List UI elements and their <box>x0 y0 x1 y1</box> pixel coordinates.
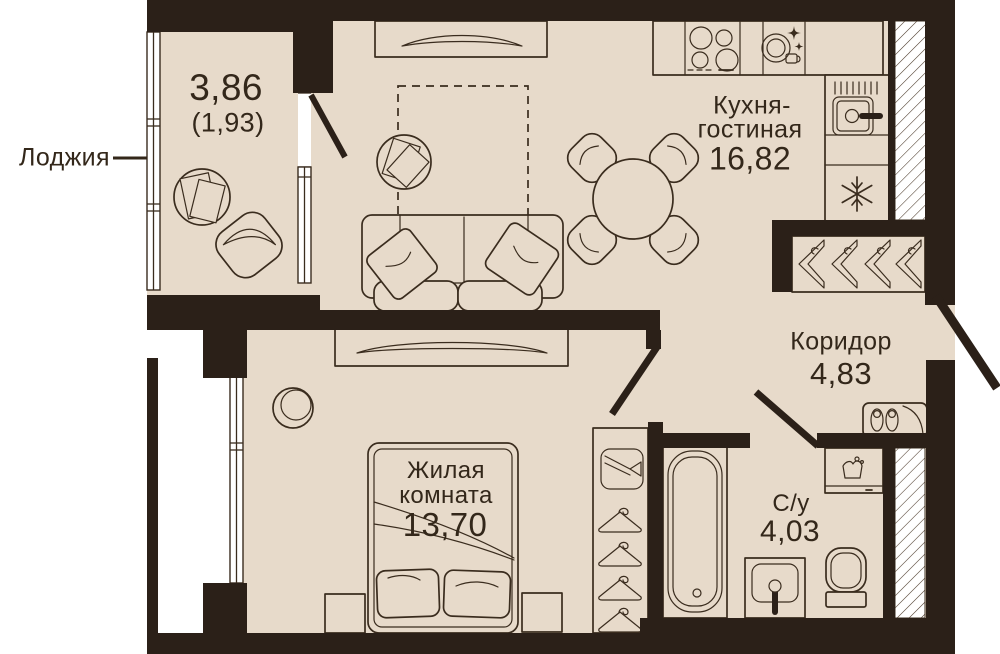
corridor-label: Коридор <box>790 328 892 357</box>
tv-console-icon <box>375 21 547 57</box>
bathtub-icon <box>663 445 727 618</box>
corridor-area-value: 4,83 <box>810 356 872 392</box>
nightstand-right <box>522 593 562 632</box>
bedroom-tv-console-icon <box>335 328 568 366</box>
mirror-icon <box>273 388 313 428</box>
bedroom-window <box>203 377 243 583</box>
shoe-cabinet-slippers-icon <box>863 403 927 437</box>
kitchen-counter <box>653 21 883 75</box>
bedroom-label-line1: Жилая <box>407 457 485 485</box>
bedroom-area-value: 13,70 <box>403 506 488 544</box>
shaft-top-hatch <box>895 21 927 220</box>
nightstand-left <box>325 594 365 633</box>
sofa-icon <box>362 215 563 311</box>
loggia-window <box>147 32 160 290</box>
loggia-door-opening <box>298 93 311 167</box>
floor-plan: Лоджия 3,86 (1,93) Кухня- гостиная 16,82… <box>0 0 1000 654</box>
coffee-table-icon <box>377 135 431 189</box>
toilet-icon <box>826 548 866 607</box>
shaft-bottom-hatch <box>895 448 925 618</box>
loggia-partition-window <box>298 167 311 283</box>
bathroom-area-value: 4,03 <box>760 515 820 549</box>
loggia-area-value: 3,86 <box>189 67 263 109</box>
kitchen-living-area-value: 16,82 <box>709 141 791 178</box>
washing-machine-icon <box>825 448 883 493</box>
bathroom-label: С/у <box>772 490 809 518</box>
loggia-area-secondary-value: (1,93) <box>192 108 265 139</box>
washbasin-icon <box>745 558 805 618</box>
dining-table-icon <box>593 159 673 239</box>
loggia-callout-label: Лоджия <box>0 144 110 173</box>
bedroom-closet <box>593 428 648 633</box>
